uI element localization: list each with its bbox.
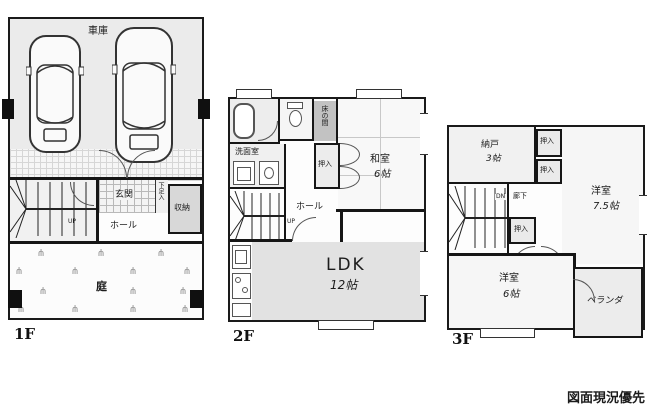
hall-1f-label: ホール bbox=[110, 222, 137, 231]
door-arc bbox=[573, 279, 595, 301]
washitsu-size: 6帖 bbox=[374, 170, 390, 180]
grass-icon bbox=[72, 266, 78, 276]
yoshitsu-large-size: 7.5帖 bbox=[593, 202, 619, 212]
tokonoma-label: 床の間 bbox=[321, 105, 328, 126]
staircase-icon bbox=[230, 191, 284, 241]
window bbox=[420, 251, 428, 296]
stove-icon bbox=[232, 273, 251, 299]
bay-window bbox=[356, 89, 402, 99]
garden-label: 庭 bbox=[96, 281, 107, 292]
pillar bbox=[190, 290, 204, 308]
grass-icon bbox=[180, 286, 186, 296]
wall bbox=[449, 182, 536, 184]
dn-label: DN bbox=[495, 194, 506, 200]
floor-1f-plan: 車庫 bbox=[8, 17, 204, 320]
window bbox=[420, 113, 428, 155]
kitchen-sink-bowl-icon bbox=[235, 250, 247, 264]
storeroom-label: 納戸 bbox=[481, 141, 499, 150]
washitsu-label: 和室 bbox=[370, 155, 390, 165]
grass-icon bbox=[130, 266, 136, 276]
oshiire-3f-top-label: 押入 bbox=[540, 138, 554, 145]
grass-icon bbox=[184, 266, 190, 276]
ldk-label: LDK bbox=[326, 257, 366, 274]
wall bbox=[230, 187, 284, 189]
wall bbox=[336, 209, 424, 212]
bay-window bbox=[318, 320, 374, 330]
toilet-icon bbox=[289, 110, 302, 127]
storage-label: 収納 bbox=[174, 204, 190, 212]
pillar bbox=[2, 99, 14, 119]
ldk-size: 12帖 bbox=[330, 279, 357, 291]
toilet-tank-icon bbox=[287, 102, 303, 109]
pillar bbox=[8, 290, 22, 308]
floor-3f-plan: 納戸 3帖 押入 押入 洋室 7.5帖 DN 廊下 押 bbox=[447, 125, 645, 330]
bay-window bbox=[236, 89, 272, 99]
grass-icon bbox=[40, 286, 46, 296]
shoe-cupboard-label: 下足入 bbox=[157, 182, 163, 200]
up-label: UP bbox=[287, 219, 295, 225]
pillar bbox=[198, 99, 210, 119]
washer-drum-icon bbox=[264, 167, 274, 179]
burner-icon bbox=[242, 287, 248, 293]
genkan-label: 玄関 bbox=[114, 191, 134, 200]
door-arc bbox=[292, 217, 316, 241]
grass-icon bbox=[158, 248, 164, 258]
grass-icon bbox=[16, 266, 22, 276]
grass-icon bbox=[98, 248, 104, 258]
car-icon bbox=[26, 33, 84, 155]
floor-1f-tag: 1F bbox=[14, 325, 35, 343]
wall bbox=[340, 209, 343, 242]
yoshitsu-small-label: 洋室 bbox=[499, 274, 519, 284]
floor-2f-tag: 2F bbox=[233, 327, 254, 345]
bay-window bbox=[480, 328, 535, 338]
oshiire-3f-mid-label: 押入 bbox=[540, 167, 554, 174]
grass-icon bbox=[182, 304, 188, 314]
garage-label: 車庫 bbox=[88, 27, 108, 37]
bathtub-icon bbox=[233, 103, 255, 139]
wall bbox=[284, 144, 286, 241]
floor-3f-tag: 3F bbox=[452, 330, 473, 348]
grass-icon bbox=[38, 248, 44, 258]
hall-2f-label: ホール bbox=[296, 203, 323, 212]
up-label: UP bbox=[68, 219, 76, 225]
washroom-label: 洗面室 bbox=[235, 148, 259, 156]
window bbox=[639, 195, 647, 235]
storeroom-size: 3帖 bbox=[486, 155, 501, 164]
footer-note: 図面現況優先 bbox=[567, 392, 645, 405]
oshiire-3f-lower-label: 押入 bbox=[514, 226, 528, 233]
sink-bowl-icon bbox=[237, 167, 251, 181]
yoshitsu-small-size: 6帖 bbox=[503, 290, 519, 300]
wall bbox=[280, 139, 312, 141]
burner-icon bbox=[235, 277, 241, 283]
grass-icon bbox=[130, 286, 136, 296]
car-icon bbox=[112, 25, 176, 165]
floorplan-canvas: 車庫 bbox=[0, 0, 657, 415]
tatami-line bbox=[338, 137, 424, 138]
corridor-label: 廊下 bbox=[513, 193, 527, 200]
counter-icon bbox=[232, 303, 251, 317]
oshiire-2f-label: 押入 bbox=[318, 161, 332, 168]
floor-2f-plan: 床の間 和室 6帖 押入 洗面室 bbox=[228, 97, 426, 322]
room-veranda: ベランダ bbox=[573, 267, 643, 338]
grass-icon bbox=[72, 304, 78, 314]
grass-icon bbox=[130, 304, 136, 314]
yoshitsu-large-label: 洋室 bbox=[591, 187, 611, 197]
